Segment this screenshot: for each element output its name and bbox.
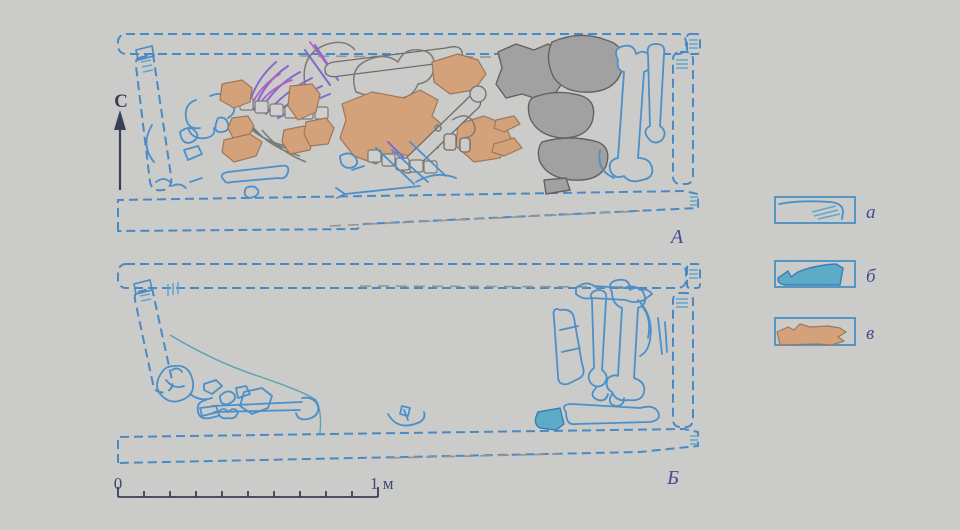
coffin-b-bottom-plank: [118, 429, 698, 463]
scale-bar: 0 1 м: [114, 474, 394, 497]
coffin-b-top-plank: [118, 264, 686, 288]
scale-bar-line: [118, 487, 378, 497]
north-label: С: [114, 91, 128, 112]
skeleton-b-left: [157, 335, 425, 433]
north-arrow: С: [114, 91, 128, 190]
skeleton-a-right: [492, 35, 665, 194]
burial-plan-b: Б: [118, 264, 700, 489]
legend-label-v: в: [866, 323, 874, 344]
coffin-b-right-plank: [673, 293, 693, 427]
plan-b-label: Б: [666, 467, 679, 489]
legend-item-a: а: [775, 197, 876, 223]
coffin-b-diagonal-plank: [135, 288, 173, 392]
coffin-b-top-plank-end: [687, 264, 700, 288]
coffin-a-right-plank: [673, 52, 693, 184]
legend-item-b: б: [775, 261, 877, 287]
coffin-a-bottom-plank: [118, 191, 698, 231]
plan-a-label: А: [669, 226, 684, 248]
figure-canvas: С: [0, 0, 960, 530]
skeleton-b-right: [535, 280, 667, 430]
legend-label-a: а: [866, 202, 876, 223]
burial-plans-svg: С: [0, 0, 960, 530]
north-arrow-head: [114, 110, 126, 130]
legend-label-b: б: [866, 266, 877, 287]
coffin-a-diagonal-plank: [136, 54, 172, 190]
burial-plan-a: А: [118, 34, 700, 248]
legend: а б в: [775, 197, 877, 345]
legend-item-v: в: [775, 318, 874, 345]
scale-end-label: 1 м: [370, 474, 394, 493]
scale-zero-label: 0: [114, 474, 123, 493]
teal-object: [535, 408, 564, 430]
